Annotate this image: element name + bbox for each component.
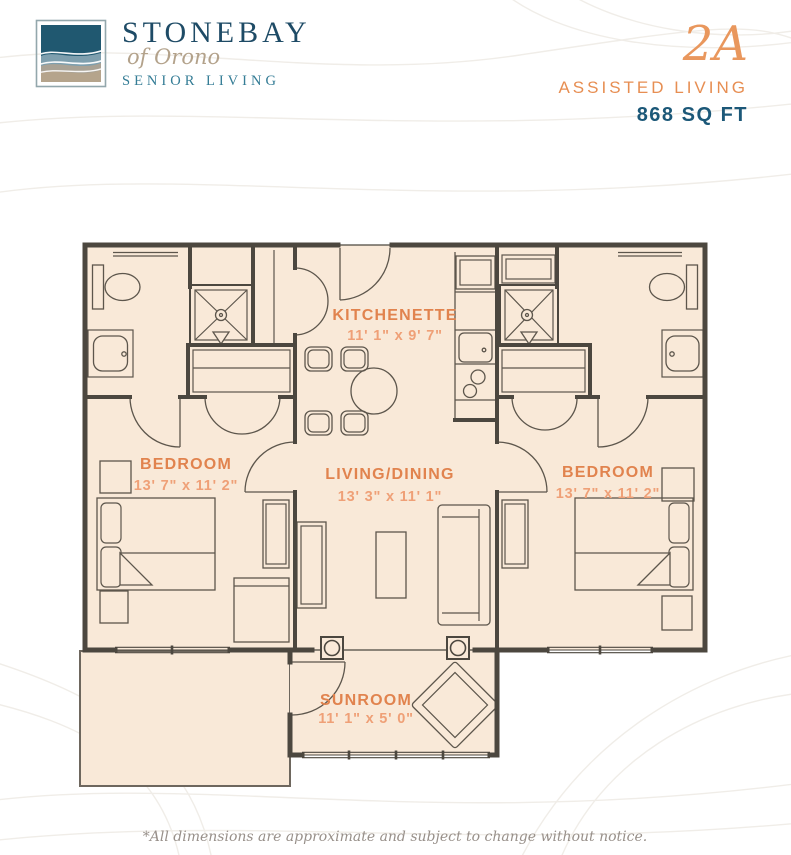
disclaimer-text: *All dimensions are approximate and subj… [143, 829, 647, 845]
room-dims-kitchenette: 11' 1" x 9' 7" [347, 328, 443, 344]
patio [80, 651, 290, 786]
floor-plan-sheet: STONEBAY of Orono SENIOR LIVING 2A ASSIS… [0, 0, 791, 855]
room-dims-sunroom: 11' 1" x 5' 0" [318, 711, 414, 727]
brand-subtitle: SENIOR LIVING [122, 73, 280, 89]
brand-logo [37, 21, 106, 87]
room-label-bedroom-right: BEDROOM [562, 464, 654, 481]
unit-type: ASSISTED LIVING [558, 78, 748, 97]
room-label-bedroom-left: BEDROOM [140, 456, 232, 473]
room-dims-living-dining: 13' 3" x 11' 1" [338, 489, 442, 505]
sunroom-windows [302, 751, 490, 760]
column-icon [321, 637, 343, 659]
floor-plan: KITCHENETTE 11' 1" x 9' 7" BEDROOM 13' 7… [80, 245, 705, 786]
logo-waves-icon [38, 25, 104, 82]
bedroom-right-window [547, 646, 653, 655]
brand-tagline: of Orono [127, 45, 220, 69]
floor-plan-canvas: STONEBAY of Orono SENIOR LIVING 2A ASSIS… [0, 0, 791, 855]
unit-area: 868 SQ FT [637, 104, 748, 126]
header: STONEBAY of Orono SENIOR LIVING 2A ASSIS… [37, 16, 749, 126]
unit-code: 2A [682, 16, 748, 72]
room-label-kitchenette: KITCHENETTE [332, 307, 457, 324]
room-label-sunroom: SUNROOM [320, 692, 412, 709]
bedroom-left-window [115, 646, 230, 655]
room-label-living-dining: LIVING/DINING [325, 466, 454, 483]
room-dims-bedroom-left: 13' 7" x 11' 2" [134, 478, 238, 494]
room-dims-bedroom-right: 13' 7" x 11' 2" [556, 486, 660, 502]
column-icon [447, 637, 469, 659]
